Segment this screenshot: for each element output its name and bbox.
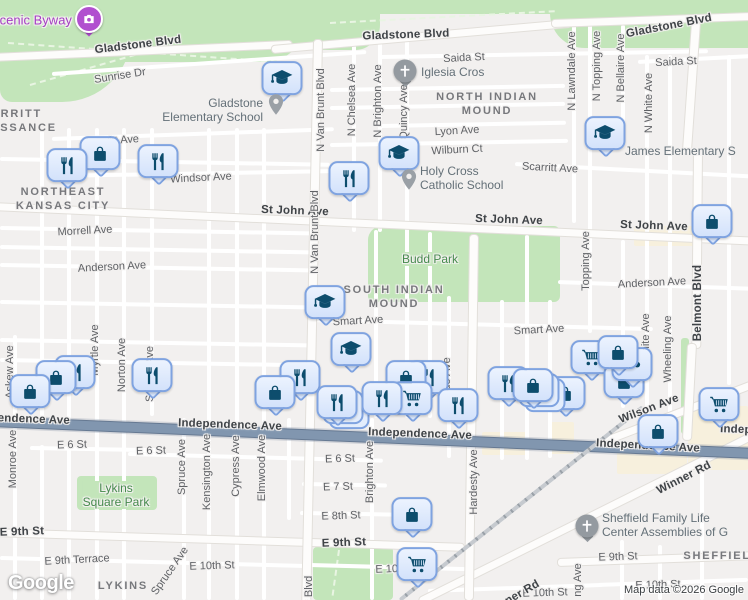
street-label: Cypress Ave bbox=[230, 435, 242, 497]
street-label: Anderson Ave bbox=[78, 259, 147, 275]
pin-card bbox=[329, 161, 370, 195]
pin-restaurant[interactable] bbox=[317, 385, 358, 427]
street-label: Norton Ave bbox=[116, 338, 128, 392]
pin-restaurant[interactable] bbox=[438, 388, 479, 430]
pin-card bbox=[598, 335, 639, 369]
street-label: E 9th Terrace bbox=[44, 552, 110, 567]
street-label: N Chelsea Ave bbox=[346, 64, 358, 137]
pin-school[interactable] bbox=[305, 285, 346, 327]
shopping-bag-icon bbox=[403, 505, 422, 524]
pin-restaurant[interactable] bbox=[47, 148, 88, 190]
pin-cart[interactable] bbox=[397, 547, 438, 589]
pin-card bbox=[132, 358, 173, 392]
street-label: E 6 St bbox=[57, 438, 87, 451]
shopping-cart-icon bbox=[709, 395, 730, 414]
street-label: E 6 St bbox=[136, 444, 166, 457]
pin-card bbox=[10, 374, 51, 408]
street-label: Anderson Ave bbox=[618, 275, 687, 291]
pin-card bbox=[397, 547, 438, 581]
shopping-bag-icon bbox=[649, 422, 668, 441]
fork-knife-icon bbox=[149, 152, 168, 171]
shopping-bag-icon bbox=[703, 212, 722, 231]
cross-icon bbox=[398, 64, 413, 79]
fork-knife-icon bbox=[449, 396, 468, 415]
street-label: Smart Ave bbox=[513, 323, 564, 338]
pin-card bbox=[692, 204, 733, 238]
pin-card bbox=[317, 385, 358, 419]
street-label: N Van Brunt Blvd bbox=[315, 68, 327, 152]
graduation-cap-icon bbox=[340, 340, 363, 359]
graduation-cap-icon bbox=[271, 69, 294, 88]
pin-bag[interactable] bbox=[598, 335, 639, 377]
road bbox=[207, 128, 211, 600]
street-label: Gladstone Blvd bbox=[362, 27, 450, 42]
marker-camera[interactable] bbox=[75, 5, 103, 33]
street-label: N Lawndale Ave bbox=[566, 31, 578, 110]
shopping-bag-icon bbox=[266, 383, 285, 402]
street-label: Belmont Blvd bbox=[692, 265, 704, 342]
poi-label[interactable]: Sheffield Family LifeCenter Assemblies o… bbox=[602, 511, 728, 539]
pin-restaurant[interactable] bbox=[138, 144, 179, 186]
pin-card bbox=[438, 388, 479, 422]
poi-label[interactable]: GladstoneElementary School bbox=[162, 96, 263, 124]
street-label: Morrell Ave bbox=[57, 224, 112, 239]
poi-label[interactable]: Iglesia Cros bbox=[421, 65, 484, 79]
google-logo[interactable]: Google bbox=[8, 572, 74, 595]
street-label: E 9th St bbox=[0, 525, 44, 539]
street-label: St John Ave bbox=[620, 219, 688, 233]
marker-church[interactable] bbox=[394, 60, 417, 83]
church-marker-circle bbox=[576, 515, 599, 538]
street-label: Windsor Ave bbox=[170, 170, 232, 185]
graduation-cap-icon bbox=[594, 124, 617, 143]
park-label: Budd Park bbox=[402, 252, 458, 266]
pin-restaurant[interactable] bbox=[132, 358, 173, 400]
scenic-marker-circle bbox=[75, 5, 103, 33]
camera-icon bbox=[82, 12, 96, 26]
pin-card bbox=[699, 387, 740, 421]
place-pin-icon bbox=[401, 169, 417, 191]
street-label: Quincy Ave bbox=[398, 84, 410, 139]
graduation-cap-icon bbox=[388, 144, 411, 163]
street-label: N Brighton Ave bbox=[372, 64, 384, 137]
pin-restaurant[interactable] bbox=[362, 381, 403, 423]
street-label: Van Brunt Blvd bbox=[303, 576, 315, 600]
marker-place[interactable] bbox=[401, 169, 417, 196]
map-canvas[interactable]: Google Map data ©2026 Google Gladstone B… bbox=[0, 0, 748, 600]
street-label: E 7 St bbox=[323, 480, 353, 493]
neighborhood-label: SHEFFIELD bbox=[683, 549, 748, 563]
street-label: Wilburn Ct bbox=[431, 143, 483, 158]
pin-bag[interactable] bbox=[513, 368, 554, 410]
pin-bag[interactable] bbox=[692, 204, 733, 246]
pin-card bbox=[47, 148, 88, 182]
marker-church[interactable] bbox=[576, 515, 599, 538]
fork-knife-icon bbox=[143, 366, 162, 385]
street-label: Saida St bbox=[655, 55, 697, 69]
street-label: Lyon Ave bbox=[434, 124, 479, 138]
street-label: N White Ave bbox=[643, 73, 655, 133]
shopping-bag-icon bbox=[524, 376, 543, 395]
road bbox=[235, 128, 239, 600]
neighborhood-label: LYKINS bbox=[98, 579, 148, 593]
street-label: ng Ave bbox=[572, 563, 584, 596]
graduation-cap-icon bbox=[314, 293, 337, 312]
street-label: Monroe Ave bbox=[7, 430, 19, 489]
marker-place[interactable] bbox=[268, 94, 284, 121]
church-marker-circle bbox=[394, 60, 417, 83]
fork-knife-icon bbox=[328, 393, 347, 412]
pin-card bbox=[262, 61, 303, 95]
pin-card bbox=[585, 116, 626, 150]
pin-bag[interactable] bbox=[255, 375, 296, 417]
pin-card bbox=[305, 285, 346, 319]
fork-knife-icon bbox=[340, 169, 359, 188]
street-label: St John Ave bbox=[475, 213, 543, 227]
pin-school[interactable] bbox=[585, 116, 626, 158]
fork-knife-icon bbox=[58, 156, 77, 175]
pin-cart[interactable] bbox=[699, 387, 740, 429]
neighborhood-label: SOUTH INDIANMOUND bbox=[343, 283, 444, 311]
street-label: E 8th St bbox=[321, 509, 361, 522]
fork-knife-icon bbox=[373, 389, 392, 408]
poi-label[interactable]: James Elementary S bbox=[625, 144, 736, 158]
street-label: N Bellaire Ave bbox=[615, 34, 627, 103]
shopping-bag-icon bbox=[21, 382, 40, 401]
pin-bag[interactable] bbox=[392, 497, 433, 539]
cross-icon bbox=[580, 519, 595, 534]
pin-bag[interactable] bbox=[10, 374, 51, 416]
shopping-cart-icon bbox=[402, 389, 423, 408]
scenic-byway-label: Scenic Byway bbox=[0, 13, 72, 28]
road bbox=[525, 235, 529, 460]
neighborhood-label: NORTH INDIANMOUND bbox=[436, 90, 538, 118]
pin-card bbox=[638, 414, 679, 448]
park-label: LykinsSquare Park bbox=[83, 481, 150, 509]
street-label: Scarritt Ave bbox=[522, 161, 579, 176]
street-label: E 10th St bbox=[189, 559, 235, 573]
shopping-bag-icon bbox=[91, 144, 110, 163]
street-label: E 9th St bbox=[598, 550, 638, 563]
street-label: Kensington Ave bbox=[201, 434, 213, 510]
street-label: Spruce Ave bbox=[176, 439, 188, 495]
pin-card bbox=[362, 381, 403, 415]
pin-card bbox=[513, 368, 554, 402]
poi-label[interactable]: Holy CrossCatholic School bbox=[420, 164, 503, 192]
pin-card bbox=[379, 136, 420, 170]
street-label: E 9th St bbox=[322, 536, 367, 550]
pin-card bbox=[392, 497, 433, 531]
pin-card bbox=[138, 144, 179, 178]
street-label: E 6 St bbox=[325, 452, 355, 465]
pin-school[interactable] bbox=[331, 332, 372, 374]
shopping-cart-icon bbox=[407, 555, 428, 574]
pin-card bbox=[331, 332, 372, 366]
street-label: Hardesty Ave bbox=[468, 449, 480, 514]
street-label: Topping Ave bbox=[580, 231, 592, 291]
street-label: Wheeling Ave bbox=[662, 315, 674, 382]
neighborhood-label: SCARRITTRENAISSANCE bbox=[0, 107, 57, 135]
street-label: Brighton Ave bbox=[364, 441, 376, 503]
road bbox=[262, 128, 266, 600]
pin-bag[interactable] bbox=[638, 414, 679, 456]
pin-card bbox=[255, 375, 296, 409]
street-label: Saida St bbox=[443, 51, 485, 65]
map-attribution: Map data ©2026 Google bbox=[624, 584, 744, 596]
street-label: N Topping Ave bbox=[591, 31, 603, 102]
street-label: Elmwood Ave bbox=[256, 435, 268, 501]
street-label: N Van Brunt Blvd bbox=[309, 190, 321, 274]
place-pin-icon bbox=[268, 94, 284, 116]
pin-restaurant[interactable] bbox=[329, 161, 370, 203]
shopping-bag-icon bbox=[609, 343, 628, 362]
